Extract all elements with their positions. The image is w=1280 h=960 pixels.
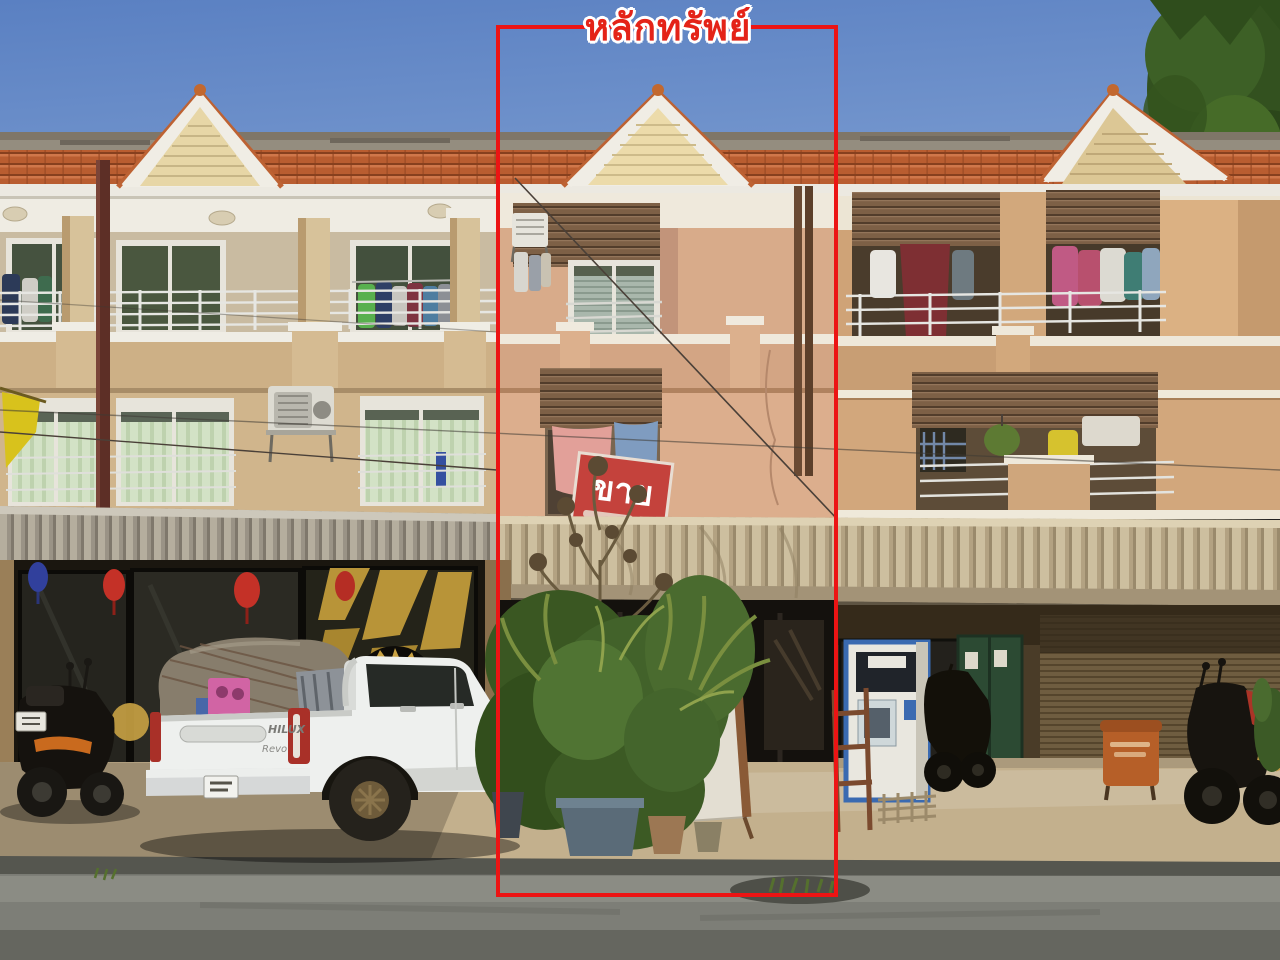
license-plate (204, 776, 238, 798)
slat-shutter-3f (852, 192, 1000, 246)
townhouse-photo: ขาย (0, 0, 1280, 960)
taillight (150, 712, 161, 762)
slat-shutter-3f (1046, 190, 1160, 244)
truck-trim-badge: Revo (262, 744, 287, 755)
water-vending-machine (846, 642, 928, 800)
annotation-title: หลักทรัพย์ (523, 0, 813, 57)
annotation-box (496, 25, 838, 897)
ledge (838, 510, 1280, 519)
right-building (838, 190, 1280, 519)
roof-finial (1107, 84, 1119, 96)
truck-model-badge: HILUX (268, 723, 306, 736)
roof-finial (194, 84, 206, 96)
pink-crate (208, 678, 250, 716)
cab-window (366, 664, 474, 707)
